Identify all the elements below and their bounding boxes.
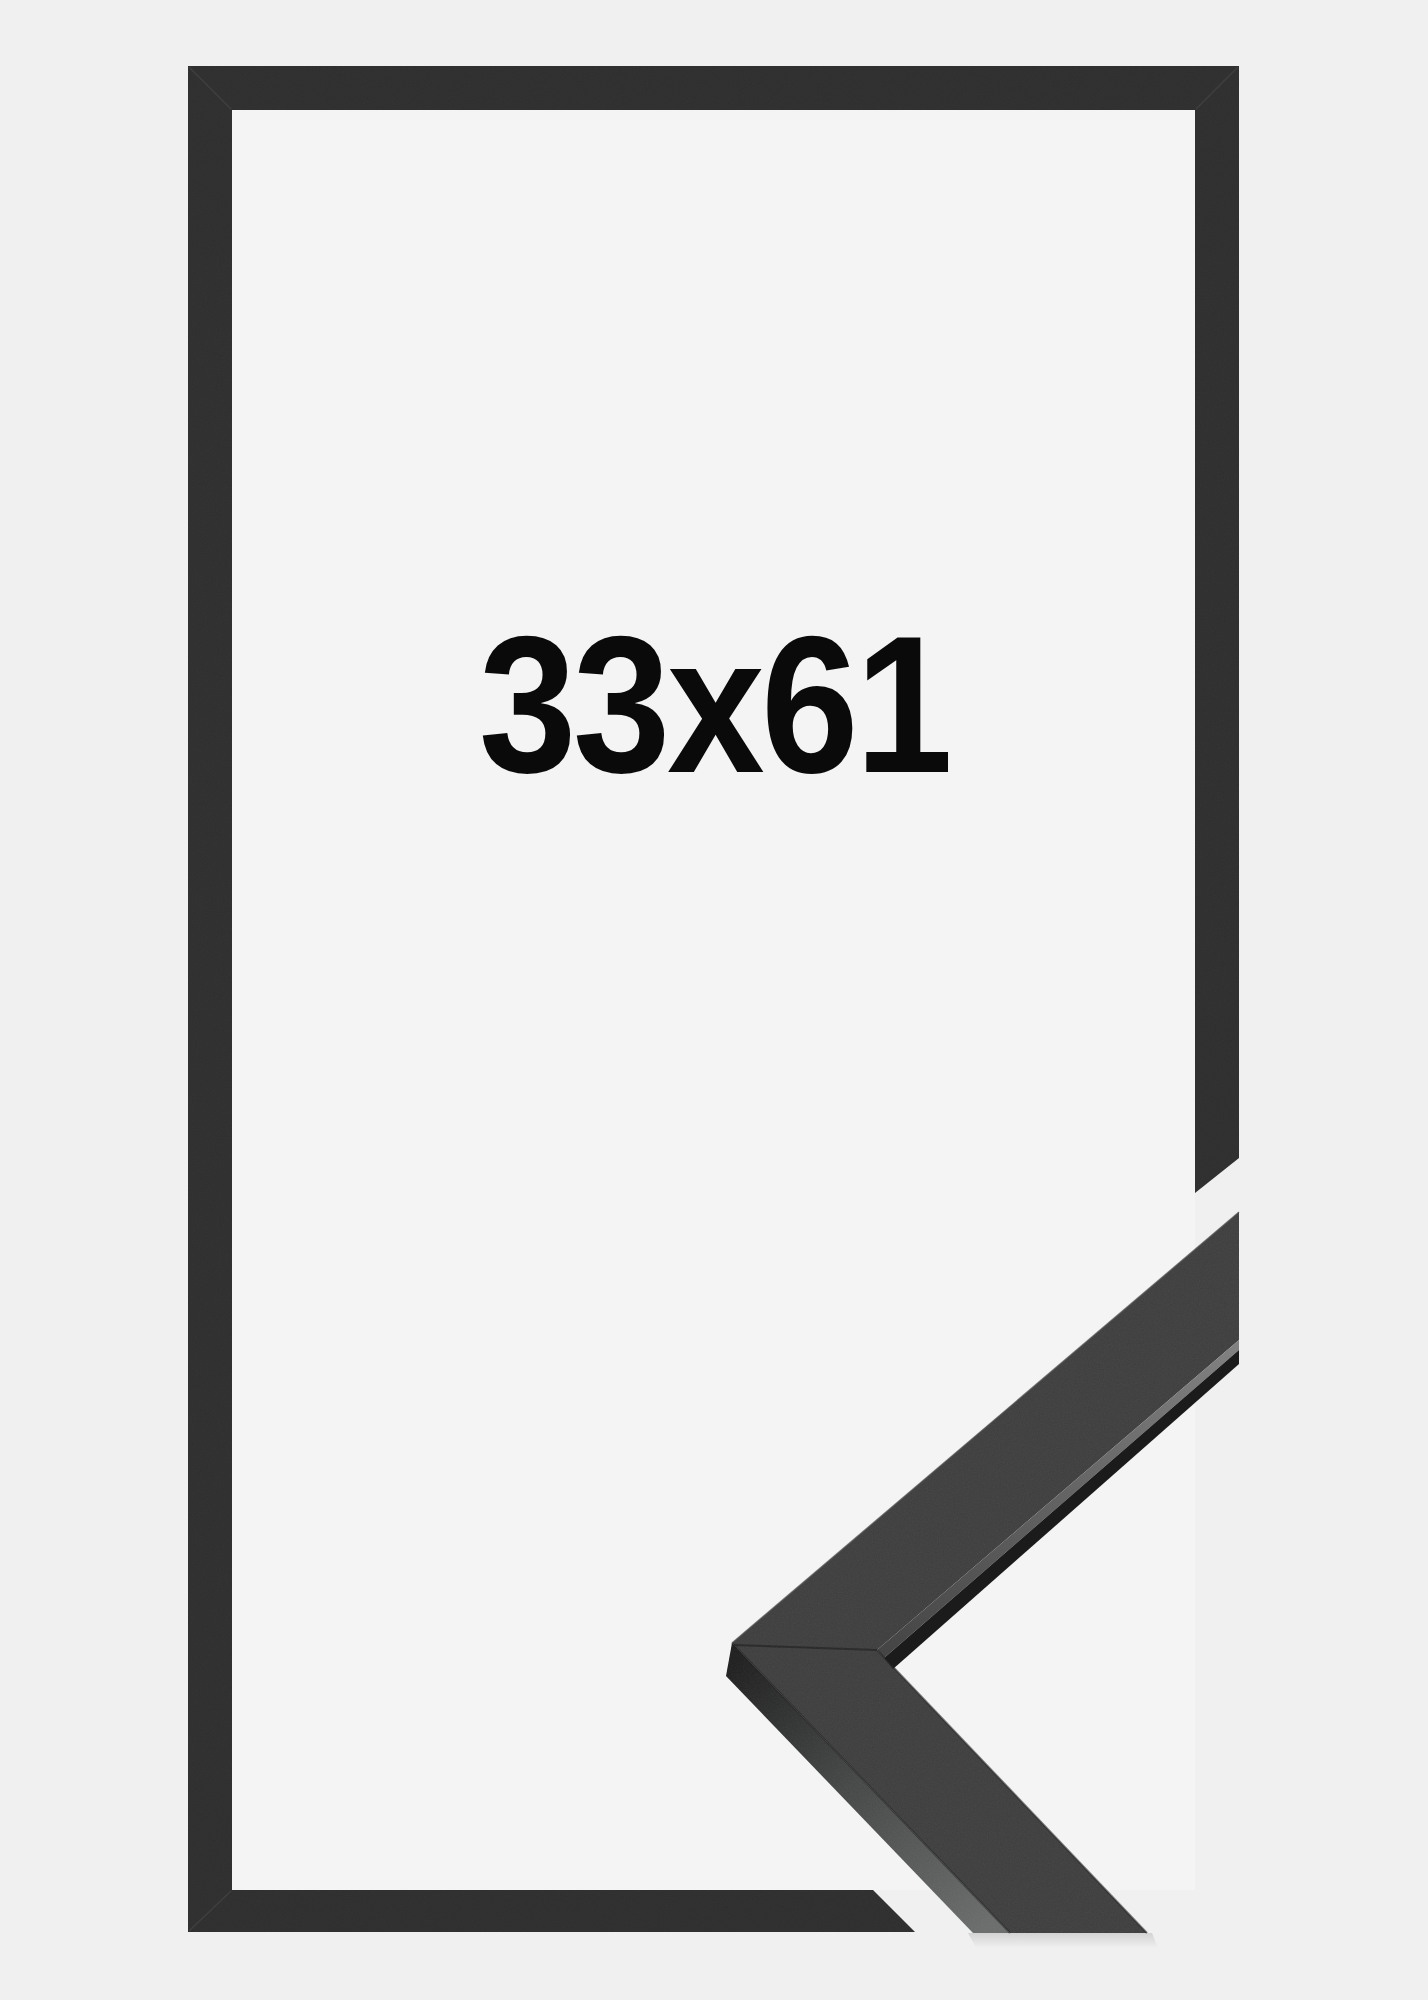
- corner-sample-shadow: [968, 1933, 1158, 1948]
- product-image: 33x61: [0, 0, 1428, 2000]
- size-label: 33x61: [479, 607, 949, 802]
- frame-graphic: [0, 0, 1428, 2000]
- frame-interior: [232, 110, 1195, 1890]
